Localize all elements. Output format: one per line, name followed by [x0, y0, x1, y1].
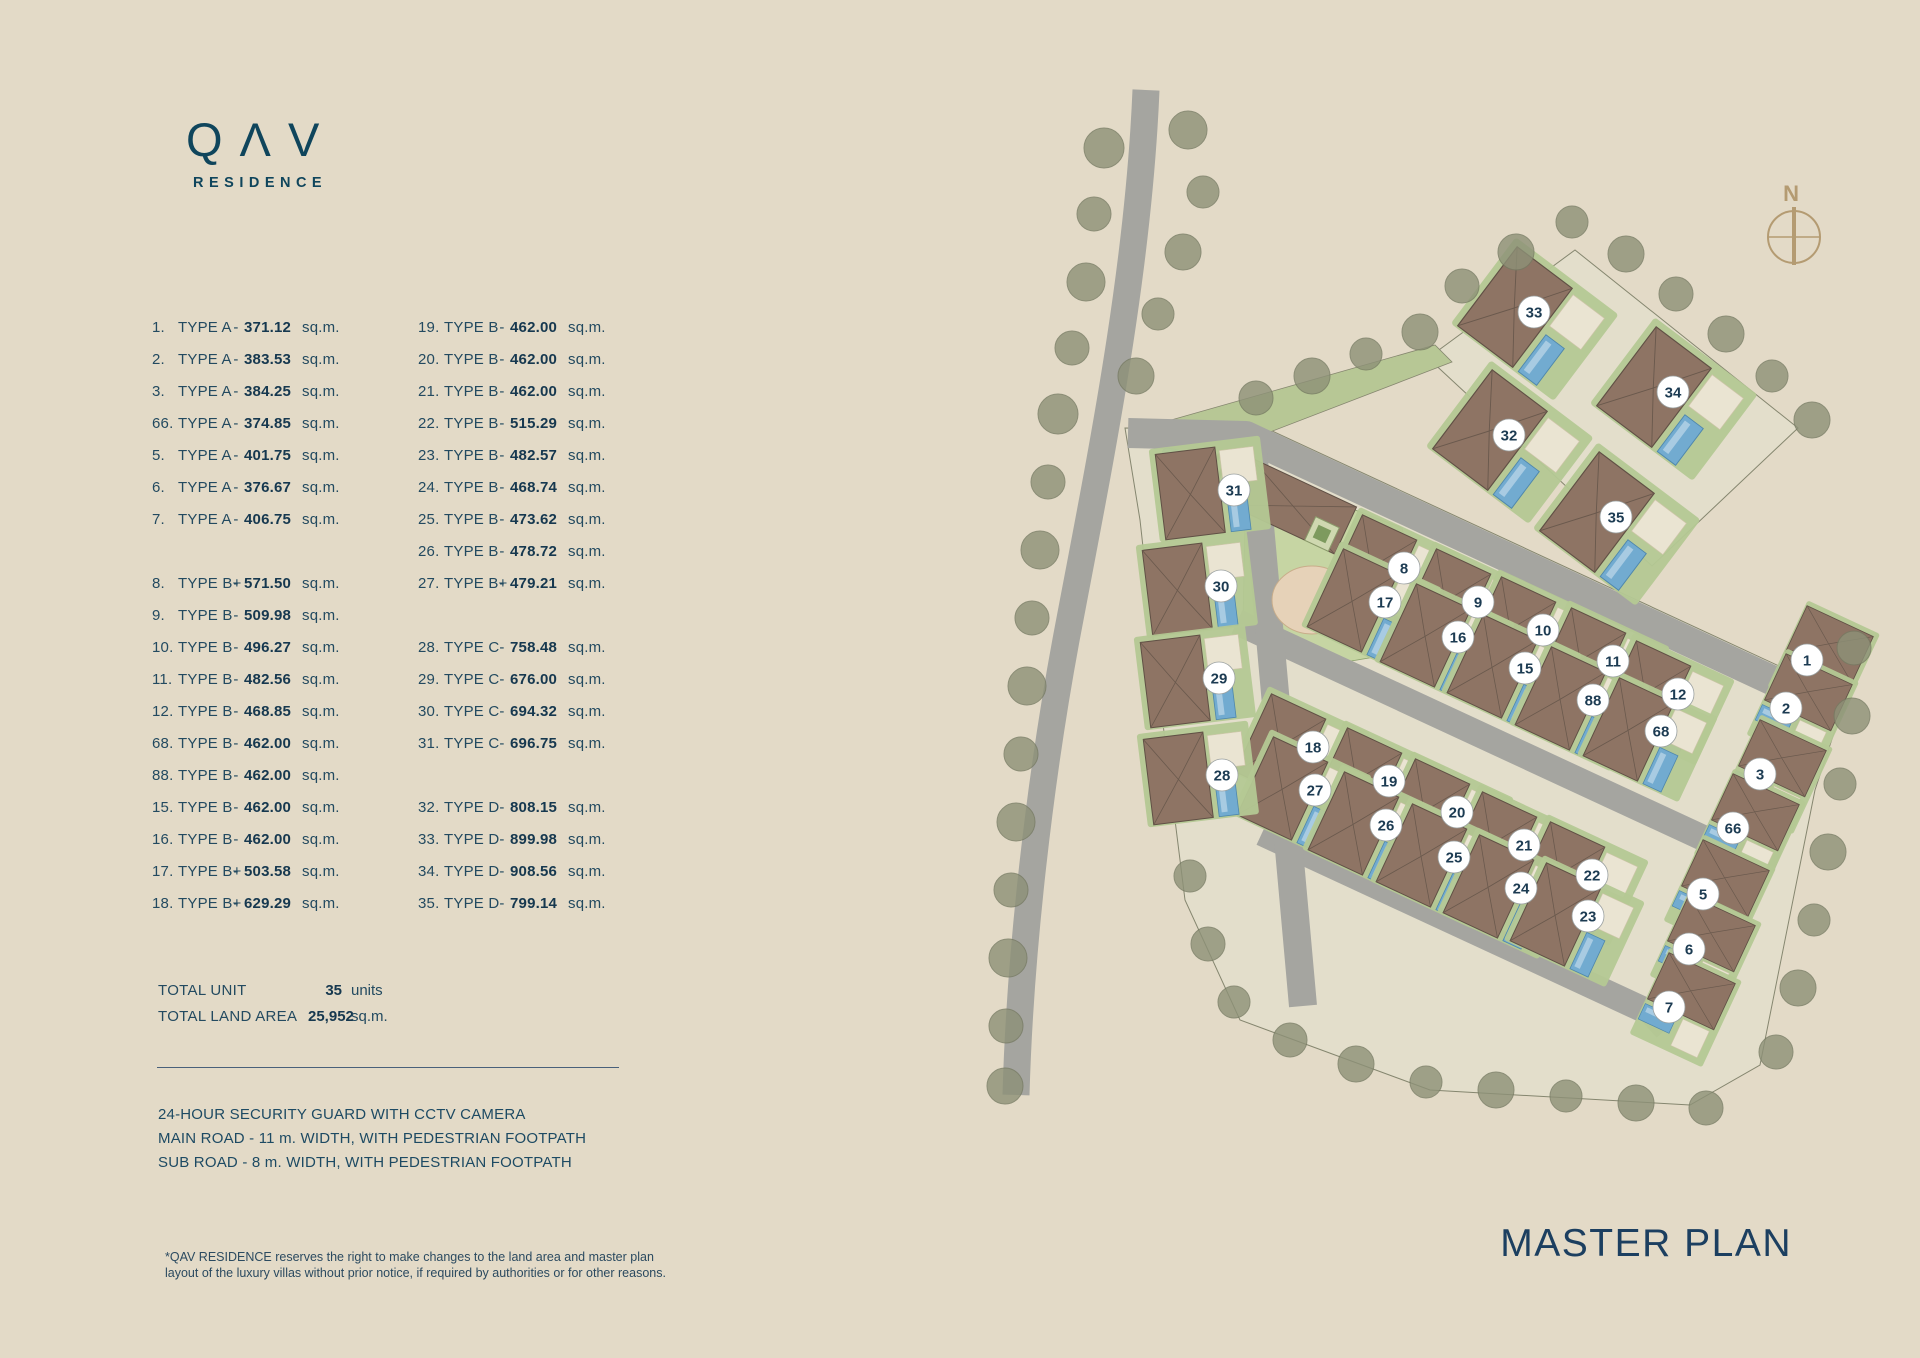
unit-marker-10: 10	[1527, 614, 1559, 646]
tree-icon	[989, 1009, 1023, 1043]
unit-marker-11: 11	[1597, 645, 1629, 677]
svg-text:3: 3	[1756, 767, 1764, 784]
tree-icon	[1402, 314, 1438, 350]
tree-icon	[1038, 394, 1078, 434]
tree-icon	[1118, 358, 1154, 394]
tree-icon	[1169, 111, 1207, 149]
unit-marker-12: 12	[1662, 678, 1694, 710]
svg-text:25: 25	[1446, 850, 1463, 867]
tree-icon	[1798, 904, 1830, 936]
villa-block-30	[1136, 532, 1259, 639]
svg-text:10: 10	[1535, 623, 1552, 640]
svg-text:68: 68	[1653, 724, 1670, 741]
svg-text:18: 18	[1305, 740, 1322, 757]
unit-marker-34: 34	[1657, 376, 1689, 408]
svg-text:88: 88	[1585, 693, 1602, 710]
unit-marker-23: 23	[1572, 900, 1604, 932]
tree-icon	[1174, 860, 1206, 892]
unit-marker-25: 25	[1438, 841, 1470, 873]
svg-text:31: 31	[1226, 483, 1243, 500]
svg-text:32: 32	[1501, 428, 1518, 445]
unit-marker-19: 19	[1373, 765, 1405, 797]
unit-marker-35: 35	[1600, 501, 1632, 533]
master-plan-page: QΛV RESIDENCE 1.TYPE A-371.12sq.m.2.TYPE…	[0, 0, 1920, 1358]
tree-icon	[1055, 331, 1089, 365]
unit-marker-18: 18	[1297, 731, 1329, 763]
unit-marker-7: 7	[1653, 991, 1685, 1023]
villa-block-28	[1137, 721, 1260, 828]
tree-icon	[1550, 1080, 1582, 1112]
unit-marker-9: 9	[1462, 586, 1494, 618]
svg-text:8: 8	[1400, 561, 1408, 578]
unit-marker-66: 66	[1717, 812, 1749, 844]
svg-text:20: 20	[1449, 805, 1466, 822]
tree-icon	[1008, 667, 1046, 705]
unit-marker-30: 30	[1205, 570, 1237, 602]
tree-icon	[1478, 1072, 1514, 1108]
unit-marker-15: 15	[1509, 652, 1541, 684]
unit-marker-3: 3	[1744, 758, 1776, 790]
svg-text:9: 9	[1474, 595, 1482, 612]
svg-text:27: 27	[1307, 783, 1324, 800]
unit-marker-88: 88	[1577, 684, 1609, 716]
svg-text:7: 7	[1665, 1000, 1673, 1017]
unit-marker-24: 24	[1505, 872, 1537, 904]
tree-icon	[1445, 269, 1479, 303]
unit-marker-1: 1	[1791, 644, 1823, 676]
tree-icon	[1608, 236, 1644, 272]
tree-icon	[1756, 360, 1788, 392]
tree-icon	[1759, 1035, 1793, 1069]
svg-text:30: 30	[1213, 579, 1230, 596]
svg-text:12: 12	[1670, 687, 1687, 704]
unit-marker-16: 16	[1442, 621, 1474, 653]
tree-icon	[1556, 206, 1588, 238]
tree-icon	[1708, 316, 1744, 352]
tree-icon	[1350, 338, 1382, 370]
tree-icon	[1338, 1046, 1374, 1082]
tree-icon	[1031, 465, 1065, 499]
compass-rose: N	[1768, 181, 1820, 265]
tree-icon	[1294, 358, 1330, 394]
unit-marker-33: 33	[1518, 296, 1550, 328]
tree-icon	[1077, 197, 1111, 231]
unit-marker-27: 27	[1299, 774, 1331, 806]
svg-text:5: 5	[1699, 887, 1707, 904]
svg-text:19: 19	[1381, 774, 1398, 791]
tree-icon	[1498, 234, 1534, 270]
unit-marker-28: 28	[1206, 759, 1238, 791]
unit-marker-2: 2	[1770, 692, 1802, 724]
tree-icon	[1810, 834, 1846, 870]
svg-text:33: 33	[1526, 305, 1543, 322]
unit-marker-68: 68	[1645, 715, 1677, 747]
svg-text:16: 16	[1450, 630, 1467, 647]
villa-block-31	[1149, 436, 1272, 543]
tree-icon	[1015, 601, 1049, 635]
villa-block-29	[1134, 624, 1257, 731]
svg-text:1: 1	[1803, 653, 1811, 670]
svg-text:15: 15	[1517, 661, 1534, 678]
tree-icon	[1834, 698, 1870, 734]
unit-marker-17: 17	[1369, 586, 1401, 618]
tree-icon	[1618, 1085, 1654, 1121]
tree-icon	[1067, 263, 1105, 301]
tree-icon	[1410, 1066, 1442, 1098]
tree-icon	[1824, 768, 1856, 800]
unit-marker-6: 6	[1673, 933, 1705, 965]
svg-text:35: 35	[1608, 510, 1625, 527]
tree-icon	[1191, 927, 1225, 961]
unit-marker-29: 29	[1203, 662, 1235, 694]
tree-icon	[1187, 176, 1219, 208]
tree-icon	[1021, 531, 1059, 569]
svg-text:24: 24	[1513, 881, 1530, 898]
site-plan-drawing: 3334323589101112171615886818192021222726…	[0, 0, 1920, 1358]
unit-marker-5: 5	[1687, 878, 1719, 910]
unit-marker-32: 32	[1493, 419, 1525, 451]
svg-text:23: 23	[1580, 909, 1597, 926]
unit-marker-8: 8	[1388, 552, 1420, 584]
tree-icon	[997, 803, 1035, 841]
tree-icon	[1794, 402, 1830, 438]
tree-icon	[1659, 277, 1693, 311]
svg-text:29: 29	[1211, 671, 1228, 688]
svg-text:28: 28	[1214, 768, 1231, 785]
svg-text:26: 26	[1378, 818, 1395, 835]
tree-icon	[1689, 1091, 1723, 1125]
unit-marker-31: 31	[1218, 474, 1250, 506]
tree-icon	[1239, 381, 1273, 415]
tree-icon	[989, 939, 1027, 977]
tree-icon	[994, 873, 1028, 907]
unit-marker-26: 26	[1370, 809, 1402, 841]
tree-icon	[1218, 986, 1250, 1018]
svg-text:2: 2	[1782, 701, 1790, 718]
compass-north-label: N	[1783, 181, 1799, 206]
svg-text:21: 21	[1516, 838, 1533, 855]
tree-icon	[1837, 631, 1871, 665]
tree-icon	[1084, 128, 1124, 168]
tree-icon	[1273, 1023, 1307, 1057]
svg-text:11: 11	[1605, 654, 1621, 671]
svg-text:17: 17	[1377, 595, 1394, 612]
tree-icon	[1004, 737, 1038, 771]
unit-marker-20: 20	[1441, 796, 1473, 828]
perimeter-road	[1016, 90, 1146, 1095]
unit-marker-22: 22	[1576, 859, 1608, 891]
tree-icon	[1165, 234, 1201, 270]
svg-text:34: 34	[1665, 385, 1682, 402]
tree-icon	[1780, 970, 1816, 1006]
tree-icon	[1142, 298, 1174, 330]
unit-marker-21: 21	[1508, 829, 1540, 861]
tree-icon	[987, 1068, 1023, 1104]
svg-text:6: 6	[1685, 942, 1693, 959]
svg-text:22: 22	[1584, 868, 1601, 885]
svg-text:66: 66	[1725, 821, 1742, 838]
